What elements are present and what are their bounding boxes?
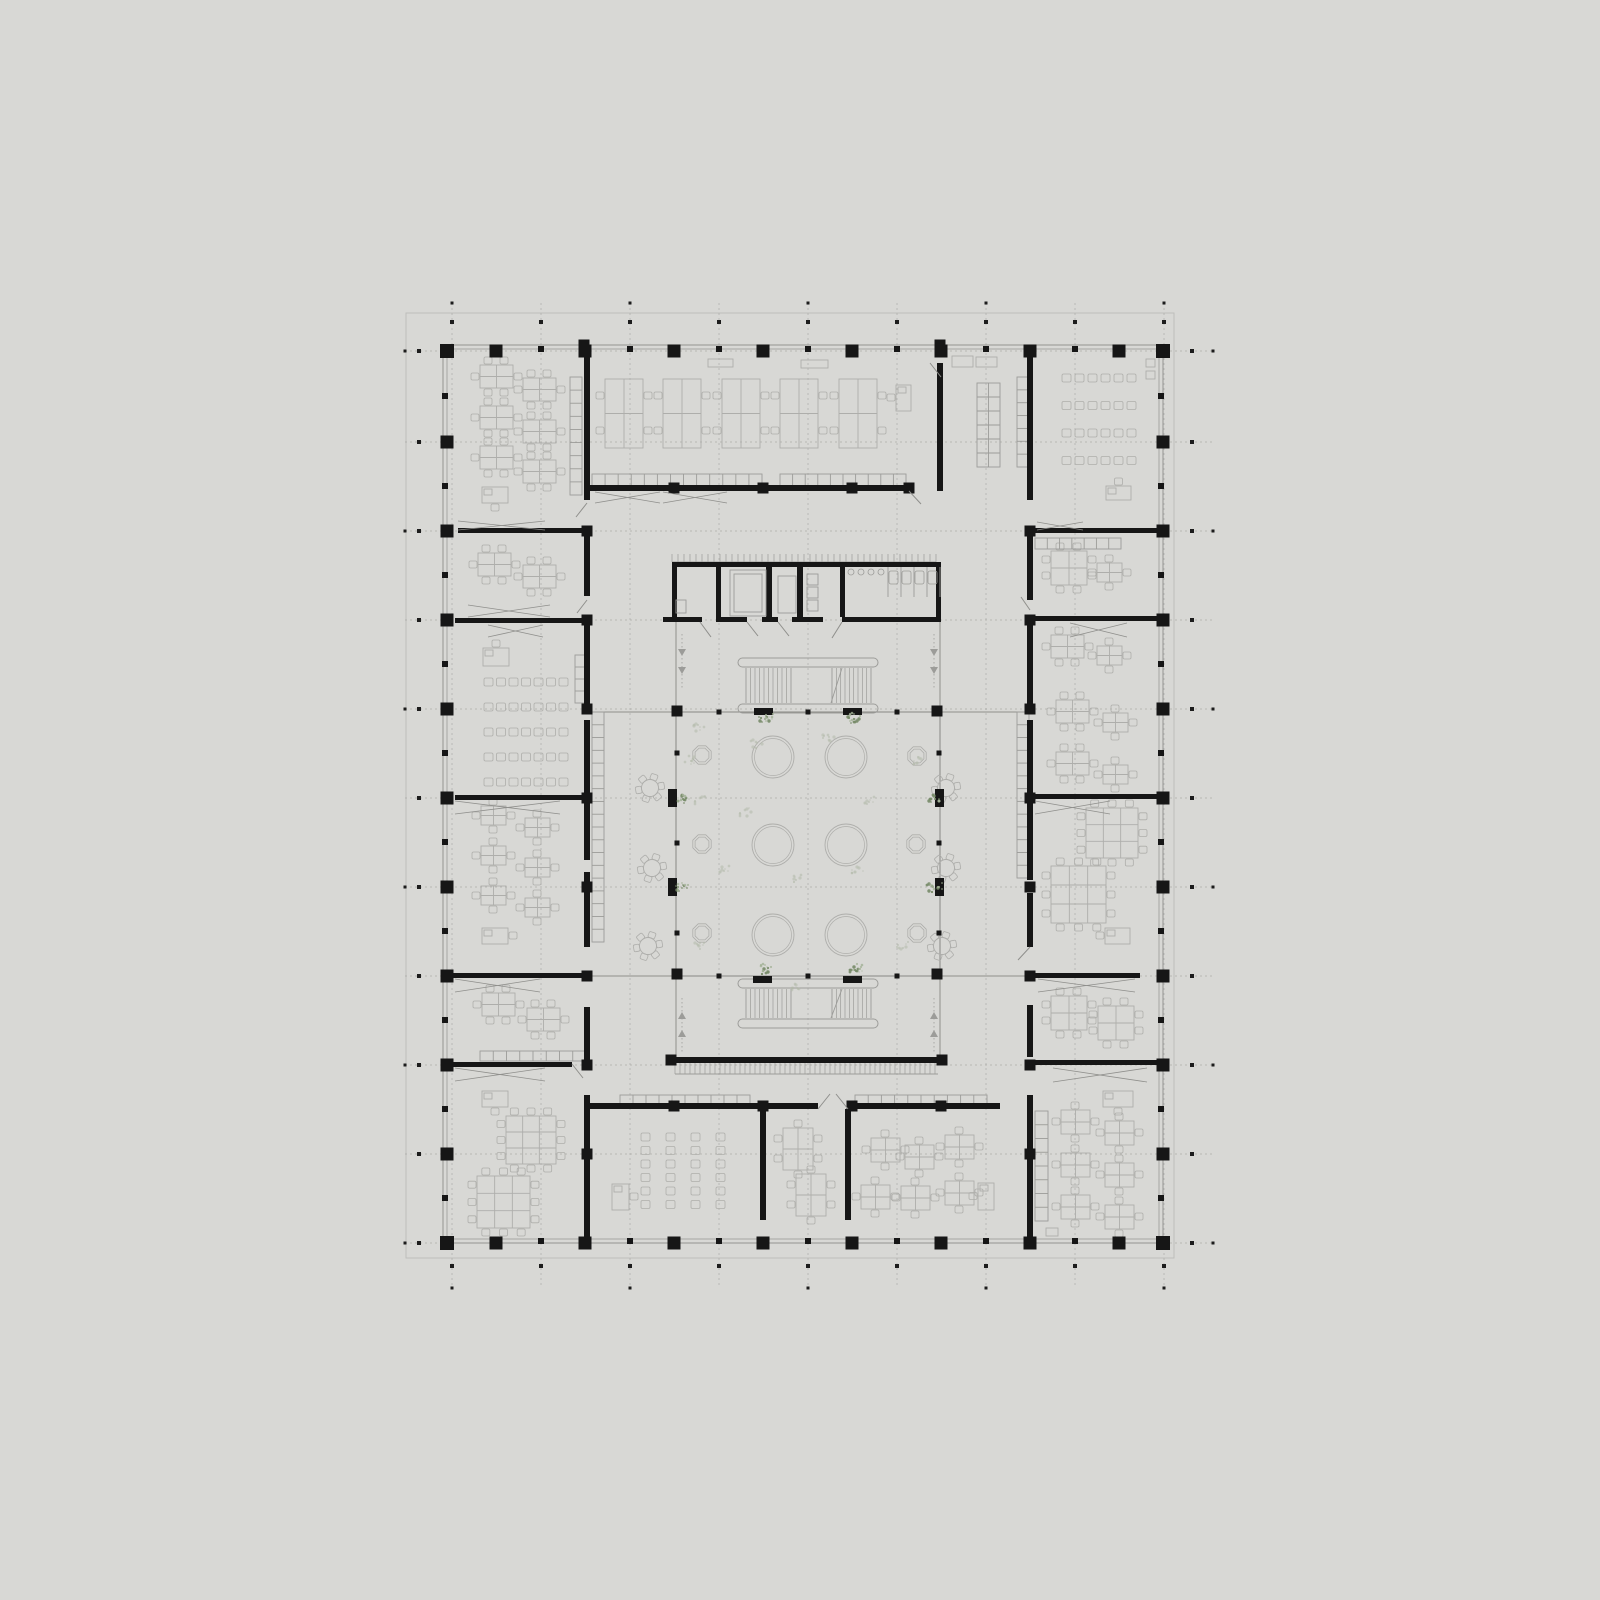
wall-segment xyxy=(672,562,941,567)
wall-junction-column xyxy=(758,1101,769,1112)
wall-junction-column xyxy=(758,483,769,494)
wall-segment xyxy=(455,795,590,800)
wall-segment xyxy=(458,528,590,533)
plant-leaf xyxy=(693,941,696,944)
facade-mullion xyxy=(442,839,448,845)
plant-leaf xyxy=(688,798,689,799)
plant-leaf xyxy=(851,712,854,715)
wall-junction-column xyxy=(669,483,680,494)
grid-tick xyxy=(628,1264,632,1268)
wall-segment xyxy=(584,345,590,500)
column xyxy=(757,1237,770,1250)
atrium-mullion xyxy=(895,710,900,715)
plant-leaf xyxy=(723,870,725,872)
plant-leaf xyxy=(683,887,684,888)
atrium-mullion xyxy=(937,841,942,846)
plant-leaf xyxy=(686,887,688,889)
facade-mullion xyxy=(1072,1238,1078,1244)
plant-leaf xyxy=(699,942,701,944)
wall-segment xyxy=(848,1103,1000,1109)
plant-leaf xyxy=(853,713,855,715)
column xyxy=(1157,970,1170,983)
plant-leaf xyxy=(855,718,856,719)
grid-dot xyxy=(807,1287,810,1290)
grid-tick xyxy=(984,1264,988,1268)
plant-leaf xyxy=(794,876,796,878)
atrium-mullion xyxy=(806,974,811,979)
wall-segment xyxy=(842,617,941,622)
plant-leaf xyxy=(727,870,729,872)
plant-leaf xyxy=(693,762,695,764)
facade-mullion xyxy=(805,1238,811,1244)
grid-dot xyxy=(629,1287,632,1290)
plant-leaf xyxy=(849,971,852,974)
plant-leaf xyxy=(760,742,763,745)
atrium-mullion xyxy=(806,710,811,715)
column xyxy=(441,436,454,449)
column xyxy=(1157,703,1170,716)
plant-leaf xyxy=(756,742,758,744)
facade-mullion xyxy=(894,1238,900,1244)
wall-junction-column xyxy=(1025,793,1036,804)
plant-leaf xyxy=(861,964,864,967)
grid-dot xyxy=(807,302,810,305)
atrium-mullion xyxy=(675,751,680,756)
grid-tick xyxy=(984,320,988,324)
column xyxy=(441,614,454,627)
grid-tick xyxy=(1190,618,1194,622)
stair-planter-box xyxy=(843,976,862,983)
wall-segment xyxy=(845,1109,851,1220)
column xyxy=(490,345,503,358)
wall-junction-column xyxy=(672,706,683,717)
facade-mullion xyxy=(1158,572,1164,578)
grid-dot xyxy=(1163,302,1166,305)
plant-leaf xyxy=(823,735,825,737)
grid-tick xyxy=(1190,440,1194,444)
wall-segment xyxy=(1027,528,1163,533)
grid-dot xyxy=(629,302,632,305)
plant-leaf xyxy=(690,763,692,765)
plant-leaf xyxy=(694,803,697,806)
wall-segment xyxy=(766,567,772,617)
plant-leaf xyxy=(930,801,932,803)
plant-leaf xyxy=(681,887,683,889)
sheet xyxy=(0,0,1600,1600)
wall-segment xyxy=(584,1103,818,1109)
wall-junction-column xyxy=(582,526,593,537)
plant-leaf xyxy=(677,886,678,887)
plant-leaf xyxy=(683,802,685,804)
grid-tick xyxy=(417,974,421,978)
wall-segment xyxy=(669,1057,945,1063)
plant-leaf xyxy=(761,721,763,723)
plant-leaf xyxy=(868,801,870,803)
plant-leaf xyxy=(699,948,701,950)
plant-leaf xyxy=(702,944,704,946)
wall-segment xyxy=(716,567,721,617)
plant-leaf xyxy=(913,763,916,766)
plant-leaf xyxy=(749,810,752,813)
plant-leaf xyxy=(762,963,765,966)
stair-planter-box xyxy=(753,976,772,983)
atrium-column xyxy=(668,789,677,807)
wall-junction-column xyxy=(904,483,915,494)
facade-mullion xyxy=(442,1195,448,1201)
grid-tick xyxy=(1190,1152,1194,1156)
wall-segment xyxy=(443,973,590,978)
plant-leaf xyxy=(938,800,941,803)
wall-segment xyxy=(1027,1060,1163,1065)
facade-mullion xyxy=(716,1238,722,1244)
grid-tick xyxy=(1190,796,1194,800)
grid-tick xyxy=(895,1264,899,1268)
wall-junction-column xyxy=(935,340,946,351)
plant-leaf xyxy=(851,869,853,871)
plant-leaf xyxy=(728,865,731,868)
plant-leaf xyxy=(703,726,706,729)
grid-tick xyxy=(417,440,421,444)
atrium-mullion xyxy=(937,751,942,756)
grid-tick xyxy=(417,707,421,711)
grid-tick xyxy=(1190,885,1194,889)
plant-leaf xyxy=(848,717,850,719)
plant-leaf xyxy=(692,724,695,727)
plant-leaf xyxy=(917,756,920,759)
plant-leaf xyxy=(699,729,701,731)
plant-leaf xyxy=(873,796,876,799)
facade-mullion xyxy=(1158,1106,1164,1112)
floor-plan-drawing xyxy=(0,0,1600,1600)
corner-column xyxy=(1156,344,1170,358)
facade-mullion xyxy=(442,572,448,578)
plant-leaf xyxy=(771,718,772,719)
wall-junction-column xyxy=(1025,971,1036,982)
plant-leaf xyxy=(907,941,909,943)
plant-leaf xyxy=(697,724,699,726)
grid-dot xyxy=(985,302,988,305)
grid-dot xyxy=(404,1242,407,1245)
plant-leaf xyxy=(869,799,871,801)
wall-junction-column xyxy=(582,971,593,982)
plant-leaf xyxy=(704,795,706,797)
grid-tick xyxy=(1190,1241,1194,1245)
plant-leaf xyxy=(927,889,930,892)
wall-segment xyxy=(840,567,845,617)
plant-leaf xyxy=(798,988,801,991)
column xyxy=(1157,436,1170,449)
wall-junction-column xyxy=(847,1101,858,1112)
plant-leaf xyxy=(765,714,767,716)
plant-leaf xyxy=(677,889,679,891)
plant-leaf xyxy=(791,989,794,992)
plant-leaf xyxy=(926,884,929,887)
wall-segment xyxy=(1027,893,1033,947)
grid-tick xyxy=(539,1264,543,1268)
wall-junction-column xyxy=(1025,1060,1036,1071)
plant-leaf xyxy=(832,735,835,738)
plant xyxy=(938,800,941,803)
wall-junction-column xyxy=(1025,704,1036,715)
column xyxy=(1157,792,1170,805)
wall-segment xyxy=(1027,1005,1033,1057)
column xyxy=(1157,525,1170,538)
plant-leaf xyxy=(904,945,907,948)
wall-segment xyxy=(584,1095,590,1237)
atrium-column xyxy=(935,789,944,807)
facade-mullion xyxy=(538,346,544,352)
grid-tick xyxy=(417,1063,421,1067)
plant-leaf xyxy=(898,947,901,950)
plant-leaf xyxy=(861,970,862,971)
plant-leaf xyxy=(849,714,852,717)
plant-leaf xyxy=(720,865,723,868)
plant-leaf xyxy=(677,797,678,798)
plant-leaf xyxy=(851,872,854,875)
plant-leaf xyxy=(941,888,943,890)
atrium-column xyxy=(668,878,677,896)
plant-leaf xyxy=(758,716,760,718)
grid-tick xyxy=(417,1241,421,1245)
atrium-mullion xyxy=(895,974,900,979)
plant-leaf xyxy=(771,716,774,719)
grid-tick xyxy=(806,320,810,324)
wall-junction-column xyxy=(582,1060,593,1071)
column xyxy=(579,1237,592,1250)
wall-segment xyxy=(1027,526,1033,600)
grid-dot xyxy=(1212,1064,1215,1067)
column xyxy=(441,1059,454,1072)
plant-leaf xyxy=(761,973,763,975)
wall-junction-column xyxy=(932,706,943,717)
plant-leaf xyxy=(930,798,933,801)
plant-leaf xyxy=(766,970,769,973)
wall-junction-column xyxy=(932,969,943,980)
plant-leaf xyxy=(750,740,753,743)
wall-junction-column xyxy=(1025,882,1036,893)
plant-leaf xyxy=(692,755,695,758)
column xyxy=(490,1237,503,1250)
plant-leaf xyxy=(793,881,795,883)
wall-junction-column xyxy=(582,793,593,804)
plant-leaf xyxy=(800,874,803,877)
plant-leaf xyxy=(677,800,679,802)
plant-leaf xyxy=(675,885,677,887)
wall-junction-column xyxy=(1025,615,1036,626)
grid-dot xyxy=(1212,708,1215,711)
facade-mullion xyxy=(442,1106,448,1112)
facade-mullion xyxy=(442,750,448,756)
plant-leaf xyxy=(852,965,855,968)
wall-segment xyxy=(663,617,702,622)
wall-junction-column xyxy=(582,615,593,626)
atrium-mullion xyxy=(675,931,680,936)
wall-segment xyxy=(1027,618,1033,708)
column xyxy=(846,345,859,358)
plant-leaf xyxy=(724,868,726,870)
wall-junction-column xyxy=(669,1101,680,1112)
grid-tick xyxy=(450,320,454,324)
grid-tick xyxy=(417,885,421,889)
wall-junction-column xyxy=(936,1101,947,1112)
plant-leaf xyxy=(772,713,774,715)
grid-tick xyxy=(539,320,543,324)
grid-tick xyxy=(717,320,721,324)
plant-leaf xyxy=(745,807,748,810)
plant-leaf xyxy=(897,944,899,946)
grid-tick xyxy=(417,796,421,800)
grid-tick xyxy=(717,1264,721,1268)
facade-mullion xyxy=(627,1238,633,1244)
plant-leaf xyxy=(751,745,754,748)
column xyxy=(441,525,454,538)
grid-dot xyxy=(1212,1242,1215,1245)
wall-segment xyxy=(1027,357,1033,500)
column xyxy=(1157,614,1170,627)
plant-leaf xyxy=(931,891,933,893)
facade-mullion xyxy=(1158,839,1164,845)
grid-dot xyxy=(451,1287,454,1290)
wall-segment xyxy=(792,617,823,622)
plant-leaf xyxy=(872,801,874,803)
column xyxy=(441,970,454,983)
plant-leaf xyxy=(857,717,860,720)
grid-tick xyxy=(1190,1063,1194,1067)
plant-leaf xyxy=(681,882,683,884)
wall-junction-column xyxy=(582,1149,593,1160)
plant-leaf xyxy=(739,815,742,818)
column xyxy=(1113,1237,1126,1250)
wall-junction-column xyxy=(579,340,590,351)
plant-leaf xyxy=(902,947,904,949)
atrium-mullion xyxy=(717,974,722,979)
plant-leaf xyxy=(828,739,831,742)
wall-segment xyxy=(1027,616,1163,621)
grid-tick xyxy=(1190,974,1194,978)
grid-dot xyxy=(404,530,407,533)
wall-segment xyxy=(584,1007,590,1067)
facade-mullion xyxy=(538,1238,544,1244)
plant-leaf xyxy=(915,761,918,764)
facade-mullion xyxy=(983,346,989,352)
plant-leaf xyxy=(770,966,772,968)
plant-leaf xyxy=(680,799,683,802)
atrium-mullion xyxy=(675,841,680,846)
facade-mullion xyxy=(442,483,448,489)
grid-tick xyxy=(1190,529,1194,533)
facade-mullion xyxy=(1158,750,1164,756)
plant-leaf xyxy=(745,814,748,817)
plant-leaf xyxy=(855,865,858,868)
plant-leaf xyxy=(933,888,936,891)
corner-column xyxy=(1156,1236,1170,1250)
corner-column xyxy=(440,344,454,358)
column xyxy=(441,703,454,716)
plant-leaf xyxy=(858,971,859,972)
floor-plan-page xyxy=(0,0,1600,1600)
grid-tick xyxy=(806,1264,810,1268)
plant-leaf xyxy=(850,722,852,724)
plant-leaf xyxy=(765,720,767,722)
grid-dot xyxy=(404,886,407,889)
column xyxy=(1024,345,1037,358)
wall-junction-column xyxy=(582,704,593,715)
plant-leaf xyxy=(767,718,769,720)
plant-leaf xyxy=(849,720,851,722)
wall-segment xyxy=(455,618,590,623)
facade-mullion xyxy=(805,346,811,352)
facade-mullion xyxy=(1158,661,1164,667)
wall-junction-column xyxy=(937,1055,948,1066)
facade-mullion xyxy=(716,346,722,352)
plant-leaf xyxy=(703,942,705,944)
facade-mullion xyxy=(442,928,448,934)
grid-tick xyxy=(628,320,632,324)
plant-leaf xyxy=(694,729,697,732)
wall-segment xyxy=(762,617,778,622)
grid-tick xyxy=(450,1264,454,1268)
grid-dot xyxy=(451,302,454,305)
grid-dot xyxy=(1212,530,1215,533)
plant-leaf xyxy=(755,747,757,749)
column xyxy=(1157,1148,1170,1161)
column xyxy=(441,881,454,894)
wall-segment xyxy=(1027,973,1140,978)
grid-tick xyxy=(1162,1264,1166,1268)
wall-segment xyxy=(584,618,590,708)
facade-mullion xyxy=(442,1017,448,1023)
facade-mullion xyxy=(1158,928,1164,934)
facade-mullion xyxy=(983,1238,989,1244)
grid-tick xyxy=(1073,320,1077,324)
facade-mullion xyxy=(442,661,448,667)
wall-segment xyxy=(672,567,677,622)
grid-tick xyxy=(1162,320,1166,324)
column xyxy=(441,792,454,805)
grid-tick xyxy=(1190,349,1194,353)
wall-junction-column xyxy=(582,882,593,893)
plant-leaf xyxy=(795,879,797,881)
plant-leaf xyxy=(938,798,940,800)
grid-dot xyxy=(404,350,407,353)
plant-leaf xyxy=(677,883,680,886)
plant-leaf xyxy=(937,886,939,888)
plant-leaf xyxy=(856,963,858,965)
grid-tick xyxy=(895,320,899,324)
grid-dot xyxy=(404,1064,407,1067)
plant-leaf xyxy=(862,870,864,872)
plant-leaf xyxy=(822,737,824,739)
column xyxy=(1157,1059,1170,1072)
wall-junction-column xyxy=(1025,526,1036,537)
plant-leaf xyxy=(760,965,763,968)
plant-leaf xyxy=(798,876,801,879)
plant-leaf xyxy=(932,794,935,797)
wall-segment xyxy=(937,363,943,491)
column xyxy=(757,345,770,358)
wall-segment xyxy=(1027,1095,1033,1237)
wall-segment xyxy=(584,720,590,860)
facade-mullion xyxy=(1158,483,1164,489)
plant-leaf xyxy=(934,798,936,800)
plant-leaf xyxy=(852,969,854,971)
plant-leaf xyxy=(853,870,856,873)
wall-junction-column xyxy=(666,1055,677,1066)
facade-mullion xyxy=(894,346,900,352)
wall-segment xyxy=(1033,794,1163,799)
grid-tick xyxy=(417,618,421,622)
plant-leaf xyxy=(682,794,685,797)
